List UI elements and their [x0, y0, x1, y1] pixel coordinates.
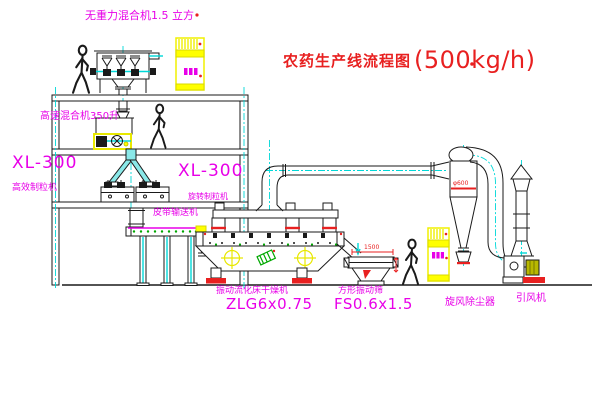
square-vibrating-sieve: [344, 249, 398, 285]
label-high-speed-mixer: 高速混合机350升: [40, 112, 119, 122]
belt-conveyor: [126, 227, 204, 286]
exhaust-duct: [256, 162, 449, 211]
belt-conveyor-legs: [137, 236, 197, 286]
gravity-free-mixer: [90, 51, 163, 111]
label-dryer-model: ZLG6x0.75: [226, 297, 313, 312]
label-fan: 引风机: [516, 294, 546, 304]
person-ground-floor: [403, 240, 418, 284]
label-left-granulator-name: 高效制粒机: [12, 184, 57, 193]
title-chinese: 农药生产线流程图: [283, 50, 411, 71]
control-cabinet-top: [176, 38, 204, 90]
fluid-bed-dryer: [196, 203, 361, 284]
diagram-title: 农药生产线流程图 (500kg/h): [283, 46, 535, 74]
control-cabinet-bottom: [428, 228, 449, 281]
induced-draft-fan: [503, 253, 545, 283]
dimension-cyclone-diameter: φ600: [453, 181, 468, 187]
granulators: [101, 180, 169, 202]
label-sieve-model: FS0.6x1.5: [334, 297, 413, 312]
label-belt-conveyor: 皮带输送机: [153, 209, 198, 218]
cyclone-dust-collector: [449, 147, 477, 264]
granulator-discharge-pipe: [128, 208, 145, 227]
label-gravity-mixer: 无重力混合机1.5 立方: [85, 10, 194, 21]
process-flow-diagram: 农药生产线流程图 (500kg/h) 无重力混合机1.5 立方 高速混合机350…: [0, 0, 600, 403]
label-cyclone: 旋风除尘器: [445, 298, 495, 308]
person-top-floor: [73, 46, 89, 93]
label-right-granulator-name: 旋转制粒机: [188, 193, 228, 201]
label-left-granulator-model: XL-300: [12, 155, 77, 172]
person-second-floor: [151, 105, 166, 148]
label-right-granulator-model: XL-300: [178, 163, 243, 180]
title-capacity: (500kg/h): [414, 46, 535, 74]
dimension-sieve-length: 1500: [364, 245, 379, 251]
